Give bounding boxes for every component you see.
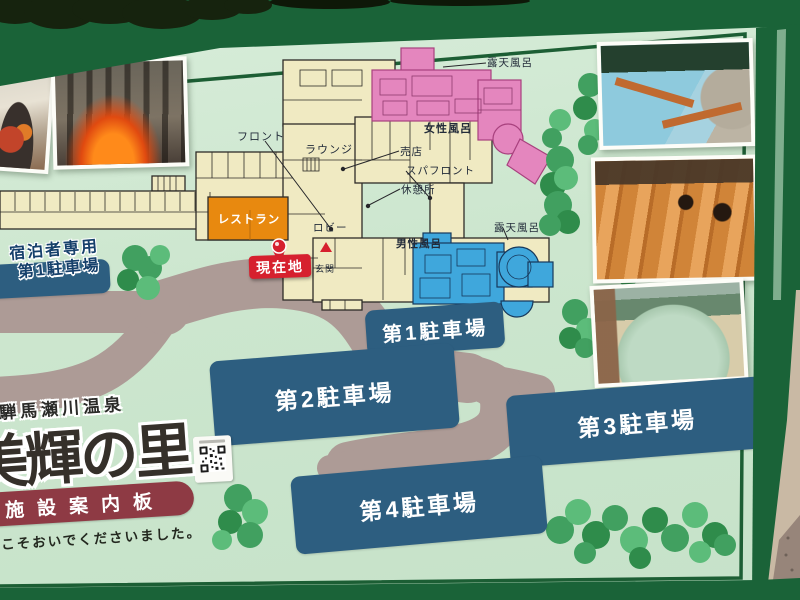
parking-lot-3-label: 第3駐車場: [576, 400, 698, 443]
label-mens-bath: 男性風呂: [396, 236, 442, 251]
qr-sticker: [193, 435, 233, 483]
parking-lot-1-label: 第1駐車場: [381, 311, 489, 347]
parking-lot-4-label: 第4駐車場: [358, 483, 480, 527]
label-restaurant: レストラン: [211, 211, 287, 227]
current-location-badge: 現在地: [249, 254, 312, 279]
label-mens-open-air-bath: 露天風呂: [494, 220, 540, 235]
signboard-photo: { "board": { "onsen_name": "飛騨馬瀬川温泉", "f…: [0, 0, 800, 600]
qr-code-icon: [199, 445, 226, 472]
label-front-desk: フロント: [237, 128, 285, 144]
photo-grilled-fish: [51, 56, 190, 170]
photo-outdoor-pool-bath: [597, 38, 756, 150]
label-womens-bath: 女性風呂: [424, 120, 472, 136]
photo-food-dish-image: [0, 66, 51, 170]
label-entrance: 玄関: [315, 262, 335, 275]
photo-outdoor-pool-bath-image: [601, 42, 752, 146]
label-shop: 売店: [400, 144, 423, 159]
qr-caption-line: [199, 439, 225, 443]
label-spa-front: スパフロント: [406, 163, 475, 178]
label-rest-area: 休憩所: [401, 182, 436, 197]
photo-wooden-bath-image: [595, 159, 755, 280]
labels-layer: 宿泊者専用 第1駐車場 第1駐車場 第2駐車場 第3駐車場 第4駐車場 フロント…: [0, 0, 800, 600]
welcome-message: ようこそおいでくださいました。: [0, 521, 203, 555]
label-lounge: ラウンジ: [305, 141, 353, 157]
guest-parking-label: 宿泊者専用 第1駐車場: [9, 237, 102, 283]
photo-wooden-bath: [591, 155, 759, 284]
parking-lot-2-label: 第2駐車場: [273, 373, 395, 416]
parking-lot-3: 第3駐車場: [506, 376, 769, 468]
photo-food-dish: [0, 62, 56, 174]
parking-lot-4: 第4駐車場: [290, 455, 548, 555]
label-lobby: ロビー: [313, 220, 348, 235]
label-womens-open-air-bath: 露天風呂: [487, 55, 533, 70]
photo-grilled-fish-image: [55, 60, 186, 165]
photo-openair-stone-bath: [589, 278, 748, 388]
photo-openair-stone-bath-image: [594, 282, 745, 384]
parking-lot-2: 第2駐車場: [209, 343, 460, 447]
